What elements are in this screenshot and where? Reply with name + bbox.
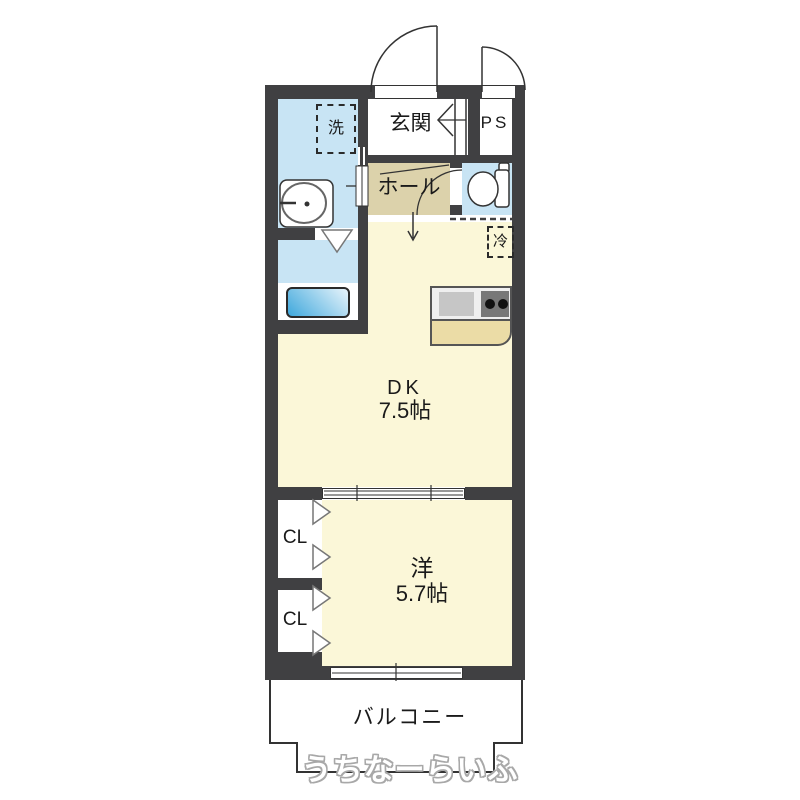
wall-partition-left: [278, 487, 322, 500]
hall-label: ホール: [366, 176, 452, 199]
balcony-label: バルコニー: [320, 706, 500, 729]
closet-lower-label: CL: [276, 610, 314, 631]
wall-closet-divider: [278, 578, 322, 590]
balcony-window: [330, 667, 463, 679]
site-watermark: うちなーらいふ: [260, 745, 560, 789]
wall-hatch-shoebox: [358, 147, 368, 165]
wall-bath-bottom: [265, 320, 368, 334]
wall-left: [265, 85, 278, 680]
entrance-label: 玄関: [368, 112, 453, 135]
ps-door-opening: [482, 85, 515, 99]
bathtub: [286, 287, 350, 318]
entrance-door-arc: [371, 26, 437, 92]
western-name-label: 洋: [352, 556, 492, 581]
wall-bath-top: [278, 228, 315, 240]
entrance-door-opening: [375, 85, 437, 99]
kitchen-sink: [439, 292, 474, 316]
washer-box: 洗: [316, 104, 356, 154]
bath-door-opening: [315, 228, 358, 240]
fridge-box: 冷: [487, 226, 514, 258]
wall-washroom-divider: [358, 99, 368, 334]
wall-partition-right: [465, 487, 512, 500]
wall-top-mid: [437, 85, 482, 99]
dk-size-label: 7.5帖: [340, 399, 470, 423]
toilet-floor: [462, 163, 512, 215]
wall-right: [512, 85, 525, 680]
kitchen-stove: [481, 291, 509, 317]
wall-under-entrance: [368, 155, 512, 163]
floorplan-canvas: 洗 冷: [0, 0, 800, 800]
kitchen-counter-front: [430, 321, 512, 346]
western-size-label: 5.7帖: [352, 582, 492, 606]
fridge-label: 冷: [493, 234, 508, 251]
bathroom-floor: [278, 240, 358, 283]
washer-label: 洗: [328, 120, 344, 138]
closet-upper-label: CL: [276, 528, 314, 549]
ps-label: PS: [476, 114, 514, 133]
dk-name-label: DK: [340, 377, 470, 399]
wall-top-left: [265, 85, 375, 99]
wall-closet-bottom: [278, 652, 322, 666]
partition-sliding-door: [322, 488, 465, 499]
